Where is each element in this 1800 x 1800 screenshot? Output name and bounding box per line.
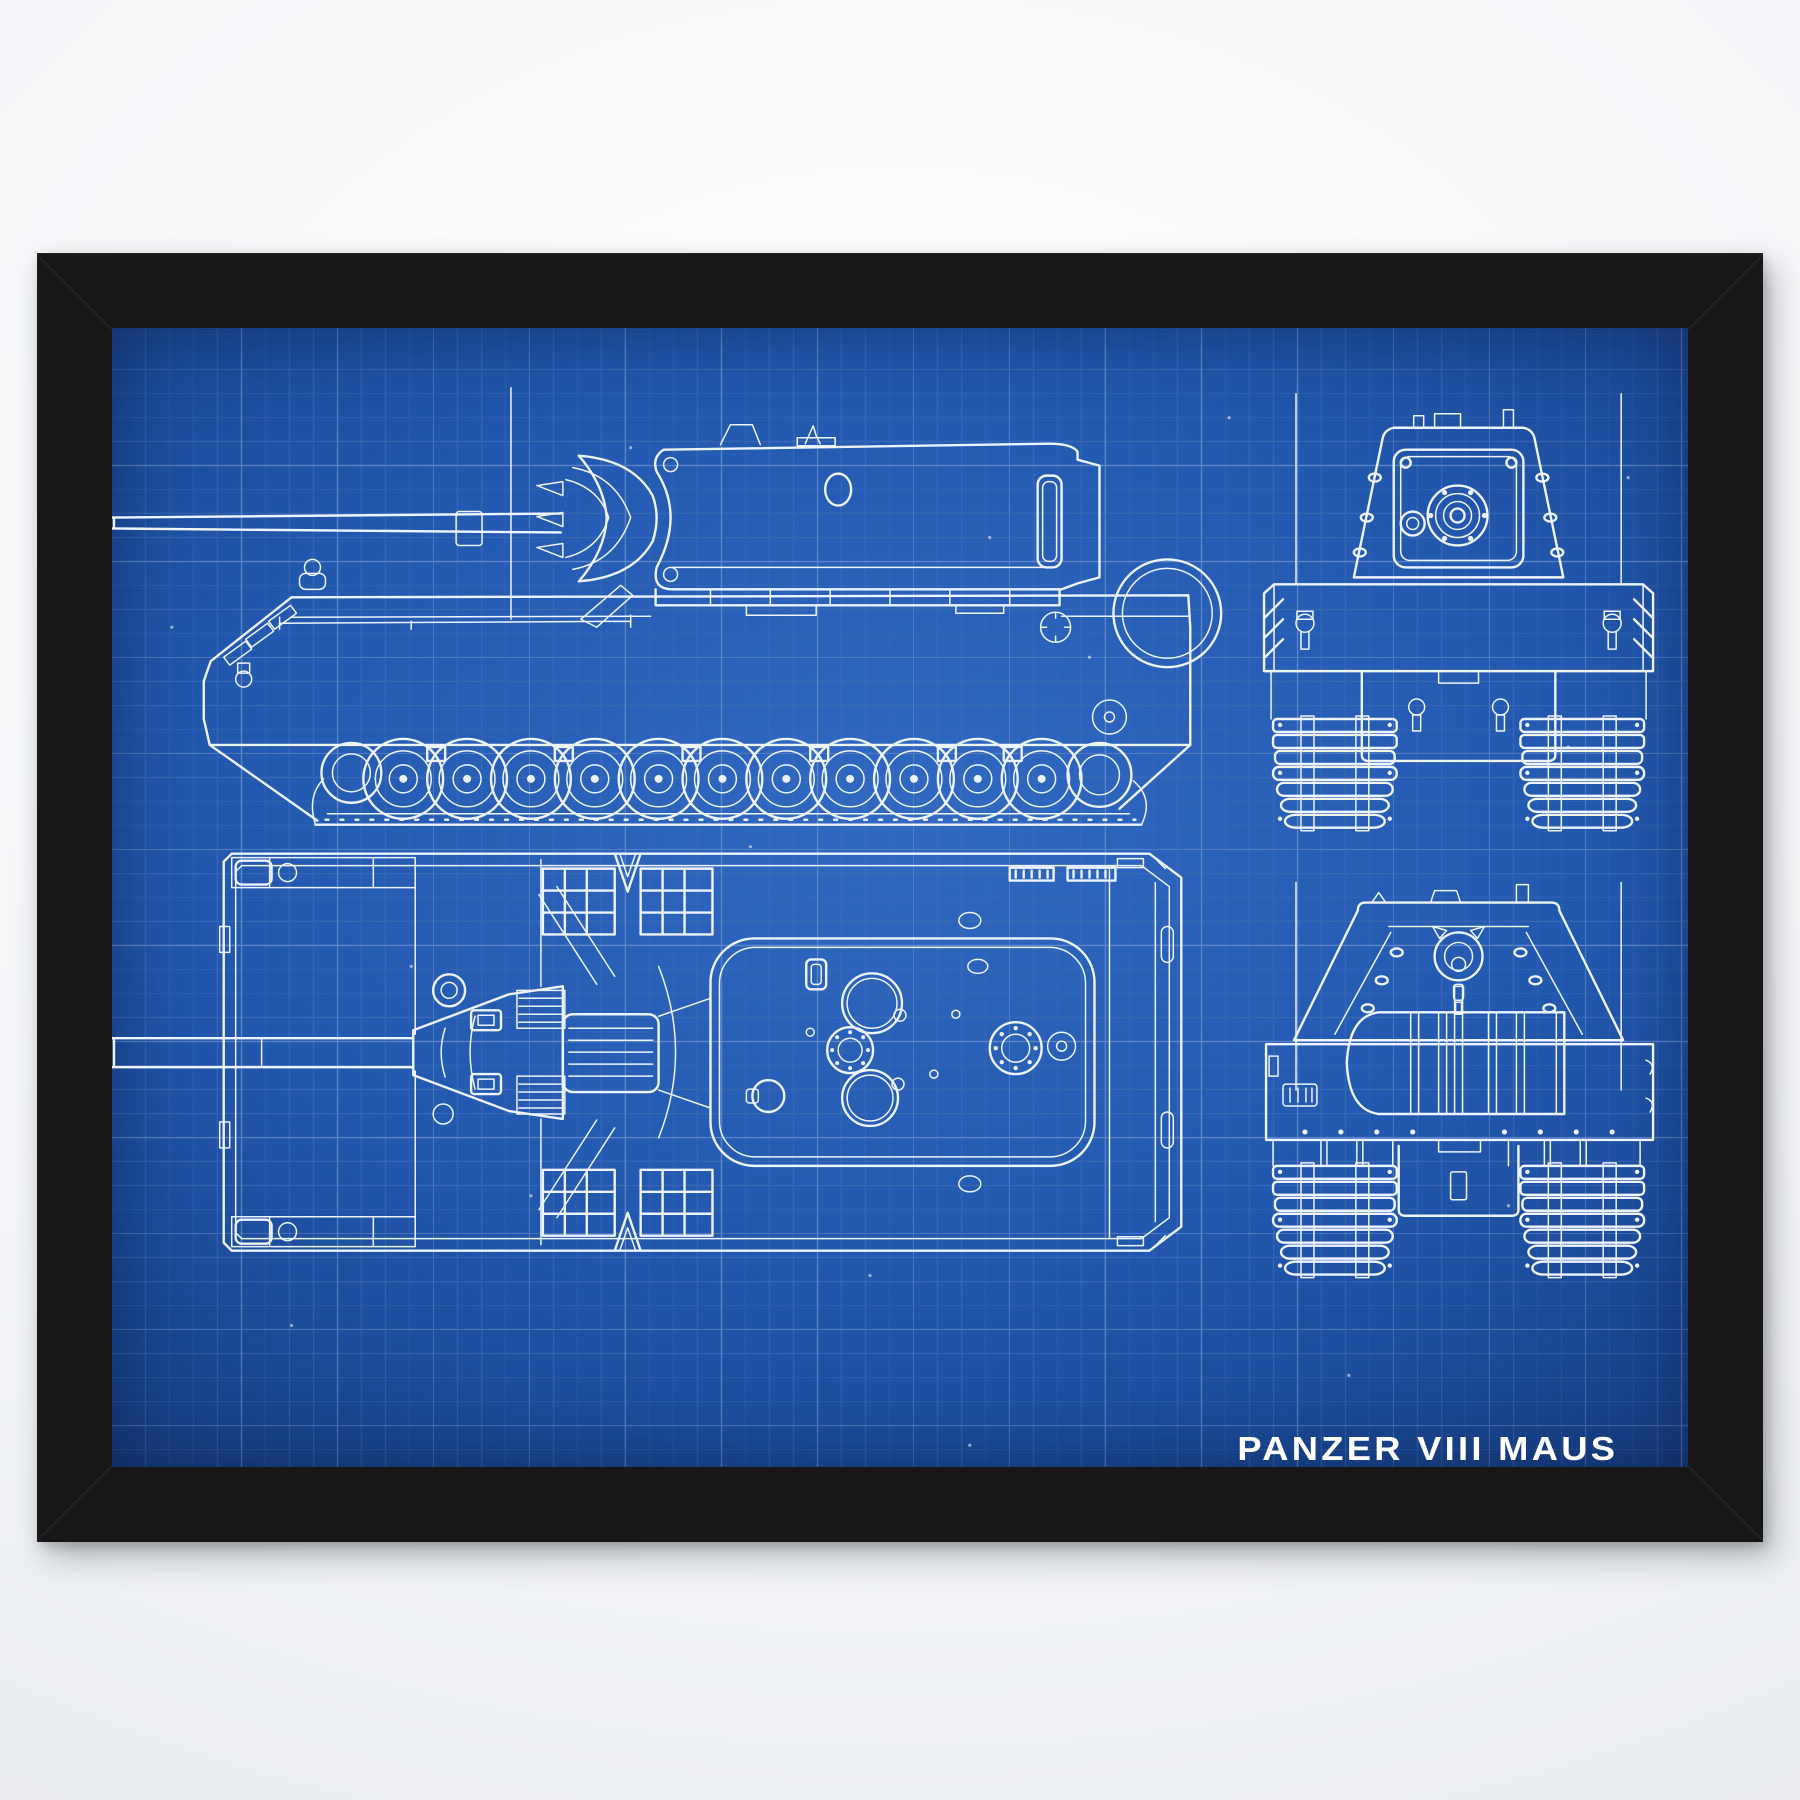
stencil-marks [1010, 868, 1116, 881]
frame-mitre-joint [36, 253, 113, 330]
frame-mitre-joint [1687, 253, 1764, 330]
paper-specks [170, 416, 1629, 1447]
front-view [1264, 394, 1653, 831]
tank-blueprint-drawing [112, 328, 1688, 1465]
side-view [112, 388, 1221, 825]
frame-mitre-joint [36, 1465, 113, 1542]
page-background: PANZER VIII MAUS [0, 0, 1800, 1800]
blueprint-board: PANZER VIII MAUS [112, 328, 1688, 1467]
top-view [112, 854, 1181, 1251]
poster-frame: PANZER VIII MAUS [37, 253, 1763, 1542]
poster-title: PANZER VIII MAUS [1237, 1431, 1618, 1467]
frame-mitre-joint [1687, 1465, 1764, 1542]
rear-view [1266, 883, 1653, 1278]
